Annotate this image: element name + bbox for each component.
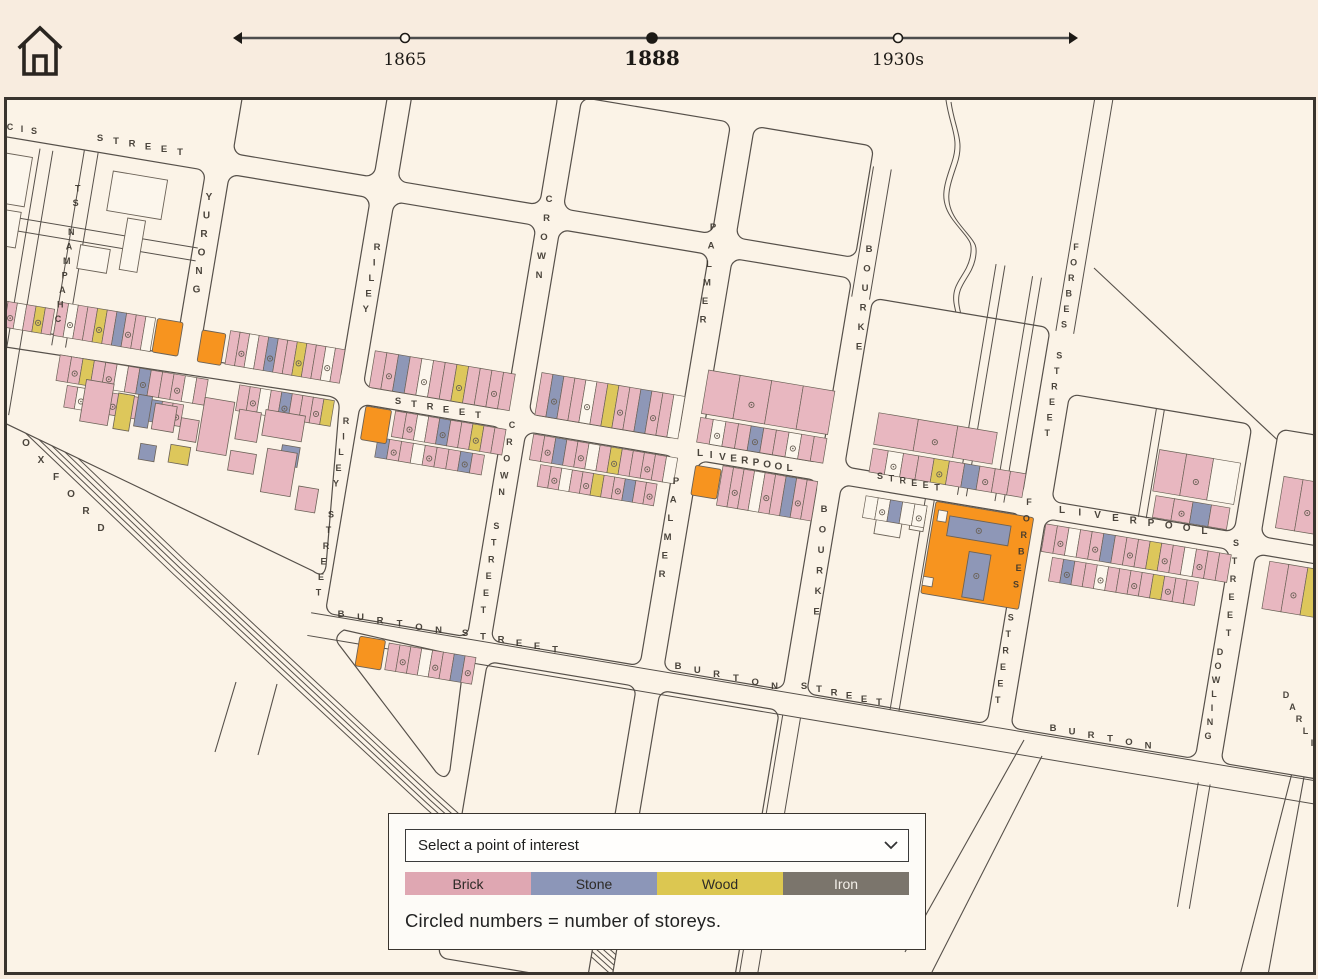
svg-text:R: R	[374, 242, 381, 253]
svg-text:E: E	[1112, 513, 1119, 524]
svg-text:U: U	[357, 612, 364, 623]
svg-text:B: B	[866, 244, 873, 255]
svg-text:D: D	[97, 523, 104, 534]
svg-text:S: S	[73, 198, 79, 208]
svg-text:F: F	[1026, 497, 1032, 507]
svg-text:T: T	[876, 697, 882, 708]
svg-text:R: R	[700, 315, 707, 326]
svg-text:L: L	[1303, 726, 1309, 736]
svg-text:S: S	[801, 681, 807, 692]
svg-text:1930s: 1930s	[872, 50, 924, 70]
svg-text:I: I	[1211, 703, 1214, 713]
svg-text:S: S	[1061, 320, 1067, 330]
svg-text:R: R	[498, 635, 505, 646]
svg-text:O: O	[1165, 521, 1173, 532]
poi-legend-panel: Select a point of interest BrickStoneWoo…	[388, 813, 926, 950]
svg-text:A: A	[66, 242, 73, 252]
svg-text:T: T	[816, 684, 822, 695]
svg-text:T: T	[177, 147, 183, 158]
svg-text:L: L	[1211, 689, 1217, 699]
svg-text:R: R	[713, 669, 720, 680]
svg-text:E: E	[1049, 397, 1055, 407]
svg-text:L: L	[338, 447, 344, 457]
svg-text:E: E	[459, 407, 465, 418]
svg-text:P: P	[710, 222, 717, 233]
chevron-down-icon	[884, 841, 898, 850]
legend-segment-brick: Brick	[405, 872, 531, 895]
svg-text:S: S	[462, 628, 468, 639]
svg-text:1865: 1865	[383, 50, 426, 70]
svg-text:H: H	[57, 300, 64, 310]
svg-text:Y: Y	[363, 304, 370, 315]
svg-text:T: T	[113, 136, 119, 147]
svg-text:M: M	[703, 278, 711, 289]
svg-text:E: E	[335, 463, 341, 473]
svg-text:L: L	[697, 448, 703, 459]
svg-text:R: R	[741, 456, 749, 467]
svg-text:R: R	[129, 139, 136, 150]
svg-text:L: L	[667, 513, 673, 524]
svg-text:W: W	[500, 470, 509, 480]
svg-text:N: N	[536, 270, 543, 281]
svg-text:C: C	[7, 122, 14, 132]
svg-text:E: E	[1228, 592, 1234, 602]
svg-text:T: T	[1232, 556, 1238, 566]
svg-text:T: T	[733, 673, 739, 684]
svg-text:E: E	[365, 289, 371, 300]
svg-text:T: T	[75, 184, 81, 194]
svg-text:K: K	[858, 322, 865, 333]
svg-text:P: P	[673, 476, 680, 487]
svg-text:1888: 1888	[624, 46, 680, 70]
svg-text:D: D	[1217, 647, 1224, 657]
svg-text:S: S	[1008, 613, 1014, 623]
svg-text:N: N	[68, 227, 75, 237]
svg-text:L: L	[1059, 505, 1065, 516]
poi-highlight-2[interactable]	[360, 406, 391, 444]
svg-text:W: W	[1212, 675, 1221, 685]
svg-text:I: I	[342, 432, 345, 442]
svg-text:E: E	[1000, 662, 1006, 672]
svg-text:R: R	[427, 402, 434, 413]
svg-text:B: B	[821, 504, 828, 515]
svg-text:V: V	[1094, 510, 1101, 521]
svg-text:T: T	[995, 695, 1001, 705]
svg-text:U: U	[862, 283, 869, 294]
svg-text:T: T	[397, 619, 403, 630]
svg-text:T: T	[1005, 629, 1011, 639]
svg-text:A: A	[670, 495, 677, 506]
svg-text:S: S	[493, 521, 499, 531]
svg-text:L: L	[1201, 526, 1207, 537]
svg-text:E: E	[702, 296, 708, 307]
svg-text:X: X	[38, 455, 45, 466]
svg-text:T: T	[491, 538, 497, 548]
svg-text:C: C	[509, 420, 516, 430]
svg-text:N: N	[1207, 717, 1214, 727]
svg-text:L: L	[368, 273, 374, 284]
poi-select-value: Select a point of interest	[418, 837, 579, 854]
svg-text:N: N	[498, 487, 505, 497]
svg-text:R: R	[343, 416, 350, 426]
svg-text:E: E	[145, 141, 151, 152]
svg-text:F: F	[1073, 242, 1079, 252]
svg-text:N: N	[195, 266, 202, 277]
legend-segment-stone: Stone	[531, 872, 657, 895]
svg-text:Y: Y	[206, 192, 213, 203]
svg-text:O: O	[1125, 737, 1132, 748]
svg-text:E: E	[443, 404, 449, 415]
svg-text:O: O	[415, 622, 422, 633]
svg-text:M: M	[63, 256, 71, 266]
svg-text:I: I	[710, 450, 713, 461]
svg-text:R: R	[1068, 273, 1075, 283]
svg-text:E: E	[486, 571, 492, 581]
svg-text:I: I	[1311, 738, 1313, 748]
svg-text:R: R	[1002, 646, 1009, 656]
svg-text:U: U	[694, 665, 701, 676]
svg-text:R: R	[1130, 515, 1138, 526]
poi-select-dropdown[interactable]: Select a point of interest	[405, 829, 909, 862]
svg-text:O: O	[67, 489, 75, 500]
svg-text:T: T	[481, 605, 487, 615]
svg-text:P: P	[1148, 518, 1155, 529]
svg-text:T: T	[316, 588, 322, 598]
svg-text:A: A	[1289, 702, 1296, 712]
svg-text:E: E	[1063, 304, 1069, 314]
svg-text:G: G	[1204, 731, 1211, 741]
svg-text:E: E	[997, 679, 1003, 689]
svg-text:R: R	[860, 303, 867, 314]
svg-text:T: T	[1054, 366, 1060, 376]
svg-text:R: R	[1230, 574, 1237, 584]
svg-text:T: T	[1044, 428, 1050, 438]
svg-text:L: L	[787, 463, 793, 474]
svg-text:C: C	[55, 314, 62, 324]
svg-text:N: N	[435, 625, 442, 636]
svg-text:C: C	[546, 194, 553, 205]
svg-text:O: O	[503, 454, 510, 464]
svg-text:T: T	[411, 399, 417, 410]
svg-text:B: B	[1066, 289, 1073, 299]
svg-text:S: S	[395, 396, 401, 407]
svg-text:I: I	[1078, 508, 1081, 519]
svg-text:O: O	[752, 677, 759, 688]
svg-text:S: S	[328, 510, 334, 520]
legend-segment-iron: Iron	[783, 872, 909, 895]
svg-text:A: A	[708, 241, 715, 252]
svg-text:V: V	[719, 452, 726, 463]
svg-text:R: R	[900, 476, 907, 486]
svg-text:O: O	[763, 459, 771, 470]
svg-text:U: U	[818, 545, 825, 556]
svg-text:O: O	[22, 438, 30, 449]
svg-text:B: B	[675, 661, 682, 672]
svg-text:R: R	[1051, 382, 1058, 392]
svg-text:E: E	[483, 588, 489, 598]
svg-text:R: R	[377, 615, 384, 626]
svg-text:R: R	[543, 213, 550, 224]
svg-text:M: M	[664, 532, 672, 543]
svg-text:T: T	[552, 645, 558, 656]
svg-text:E: E	[861, 694, 867, 705]
svg-text:T: T	[889, 473, 895, 483]
svg-text:R: R	[816, 566, 823, 577]
svg-text:L: L	[706, 259, 712, 270]
poi-highlight-5[interactable]	[355, 636, 386, 670]
legend-segment-wood: Wood	[657, 872, 783, 895]
svg-text:T: T	[480, 631, 486, 642]
svg-text:O: O	[1183, 523, 1191, 534]
poi-highlight-0[interactable]	[152, 318, 183, 356]
svg-text:E: E	[161, 144, 167, 155]
svg-text:R: R	[659, 569, 666, 580]
svg-text:S: S	[1013, 580, 1019, 590]
svg-text:O: O	[863, 264, 870, 275]
svg-text:E: E	[1047, 413, 1053, 423]
svg-text:I: I	[373, 258, 376, 269]
svg-text:S: S	[31, 126, 37, 136]
top-toolbar: 186518881930s	[0, 0, 1318, 97]
svg-text:O: O	[198, 248, 206, 259]
svg-text:S: S	[877, 471, 883, 481]
svg-text:R: R	[488, 554, 495, 564]
svg-text:N: N	[1145, 741, 1152, 752]
svg-text:B: B	[1050, 723, 1057, 734]
svg-text:W: W	[537, 251, 546, 262]
svg-text:E: E	[1227, 610, 1233, 620]
svg-text:I: I	[21, 124, 24, 134]
svg-text:F: F	[53, 472, 59, 483]
svg-text:G: G	[193, 285, 201, 296]
poi-highlight-3[interactable]	[691, 465, 722, 499]
svg-text:B: B	[338, 609, 345, 620]
svg-text:E: E	[911, 478, 917, 488]
svg-text:E: E	[662, 550, 668, 561]
svg-text:E: E	[813, 607, 819, 618]
svg-text:R: R	[323, 541, 330, 551]
svg-text:E: E	[1016, 563, 1022, 573]
svg-text:E: E	[923, 480, 929, 490]
svg-text:T: T	[1107, 734, 1113, 745]
svg-text:O: O	[1070, 258, 1077, 268]
svg-text:R: R	[200, 229, 208, 240]
svg-text:R: R	[1088, 730, 1095, 741]
svg-text:K: K	[815, 586, 822, 597]
svg-text:S: S	[1233, 538, 1239, 548]
svg-text:T: T	[326, 525, 332, 535]
svg-text:E: E	[534, 641, 540, 652]
svg-text:R: R	[1021, 530, 1028, 540]
svg-text:R: R	[831, 687, 838, 698]
svg-text:O: O	[1214, 661, 1221, 671]
svg-text:S: S	[97, 133, 103, 144]
svg-text:R: R	[506, 437, 513, 447]
svg-text:P: P	[62, 271, 68, 281]
svg-text:R: R	[1296, 714, 1303, 724]
svg-text:E: E	[318, 572, 324, 582]
svg-text:T: T	[934, 483, 940, 493]
svg-text:B: B	[1018, 547, 1025, 557]
timeline[interactable]: 186518881930s	[0, 0, 1318, 97]
svg-text:T: T	[475, 410, 481, 421]
svg-text:O: O	[1023, 514, 1030, 524]
svg-text:O: O	[540, 232, 547, 243]
legend-caption: Circled numbers = number of storeys.	[405, 910, 721, 932]
svg-text:U: U	[203, 211, 210, 222]
svg-text:E: E	[846, 691, 852, 702]
svg-text:E: E	[856, 342, 862, 353]
svg-text:E: E	[516, 638, 522, 649]
svg-text:O: O	[819, 525, 826, 536]
svg-text:S: S	[1056, 351, 1062, 361]
svg-text:E: E	[320, 556, 326, 566]
svg-text:R: R	[82, 506, 90, 517]
svg-text:D: D	[1283, 690, 1290, 700]
poi-highlight-1[interactable]	[197, 330, 226, 366]
svg-text:U: U	[1069, 727, 1076, 738]
svg-text:E: E	[730, 454, 737, 465]
svg-text:A: A	[59, 285, 66, 295]
material-legend: BrickStoneWoodIron	[405, 872, 909, 895]
svg-text:Y: Y	[333, 478, 339, 488]
svg-text:O: O	[775, 461, 783, 472]
svg-text:T: T	[1226, 628, 1232, 638]
svg-text:P: P	[753, 458, 760, 469]
svg-text:N: N	[771, 681, 778, 692]
